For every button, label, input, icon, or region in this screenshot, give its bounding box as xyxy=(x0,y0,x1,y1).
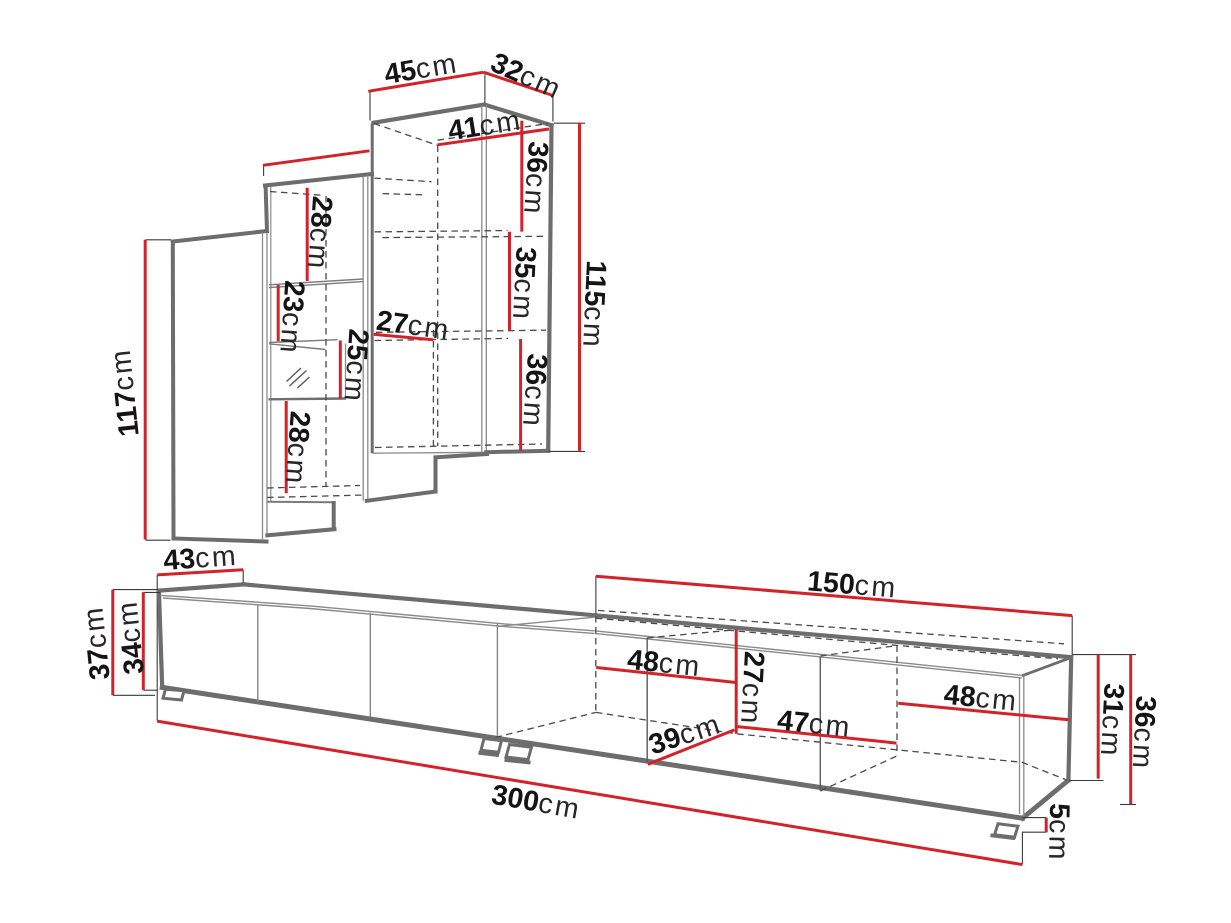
svg-text:36cm: 36cm xyxy=(517,140,554,217)
svg-text:36cm: 36cm xyxy=(1126,695,1162,771)
svg-text:35cm: 35cm xyxy=(506,246,542,322)
svg-text:25cm: 25cm xyxy=(337,328,374,405)
svg-text:27cm: 27cm xyxy=(734,650,770,726)
svg-text:43cm: 43cm xyxy=(162,540,239,577)
svg-text:31cm: 31cm xyxy=(1094,682,1130,758)
svg-text:5cm: 5cm xyxy=(1042,803,1075,862)
svg-text:23cm: 23cm xyxy=(273,279,310,356)
svg-text:115cm: 115cm xyxy=(576,260,612,350)
svg-text:28cm: 28cm xyxy=(301,195,338,272)
svg-text:28cm: 28cm xyxy=(279,410,316,487)
svg-text:36cm: 36cm xyxy=(516,353,553,430)
